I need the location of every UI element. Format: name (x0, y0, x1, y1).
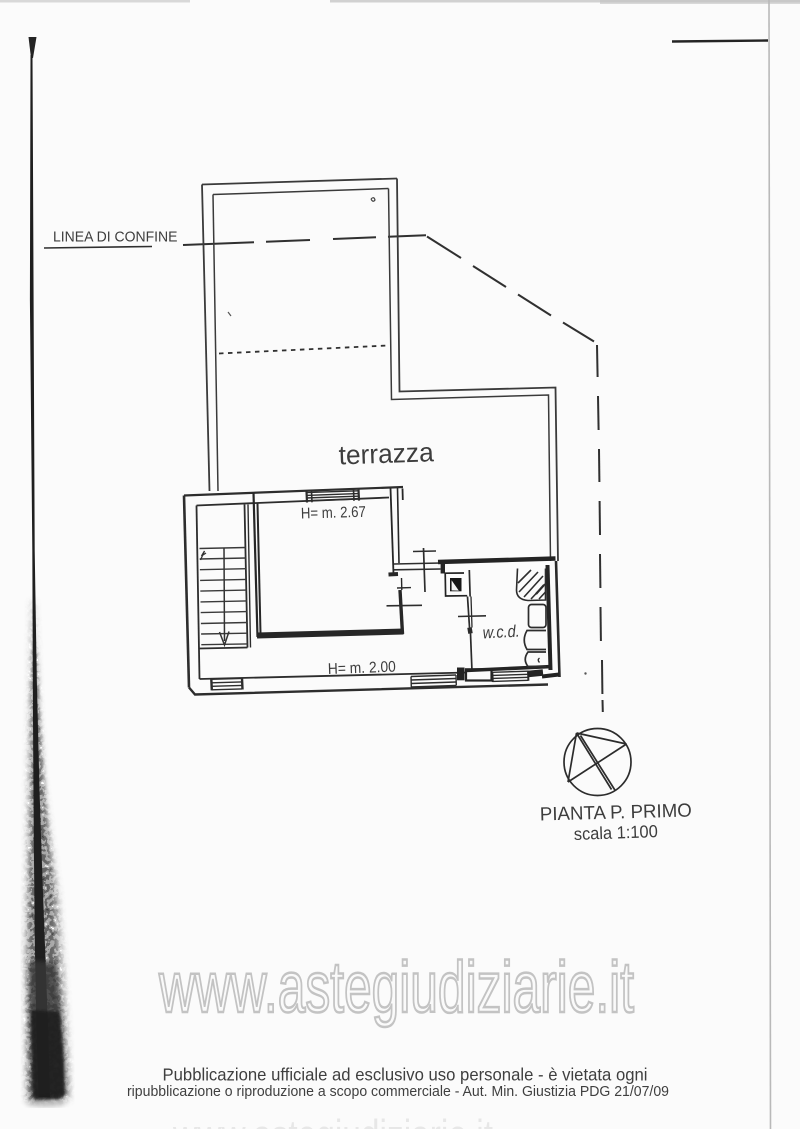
svg-text:terrazza: terrazza (338, 437, 435, 470)
svg-text:w.c.d.: w.c.d. (482, 622, 520, 643)
svg-text:Pubblicazione ufficiale ad esc: Pubblicazione ufficiale ad esclusivo uso… (163, 1065, 648, 1085)
svg-text:www.astegiudiziarie.it: www.astegiudiziarie.it (172, 1111, 493, 1129)
svg-text:LINEA DI CONFINE: LINEA DI CONFINE (53, 230, 178, 246)
svg-text:H= m. 2.00: H= m. 2.00 (328, 659, 397, 678)
svg-text:H= m. 2.67: H= m. 2.67 (301, 504, 366, 523)
svg-text:scala 1:100: scala 1:100 (573, 821, 658, 844)
svg-text:www.astegiudiziarie.it: www.astegiudiziarie.it (158, 948, 634, 1028)
svg-text:ripubblicazione o riproduzione: ripubblicazione o riproduzione a scopo c… (127, 1084, 669, 1100)
